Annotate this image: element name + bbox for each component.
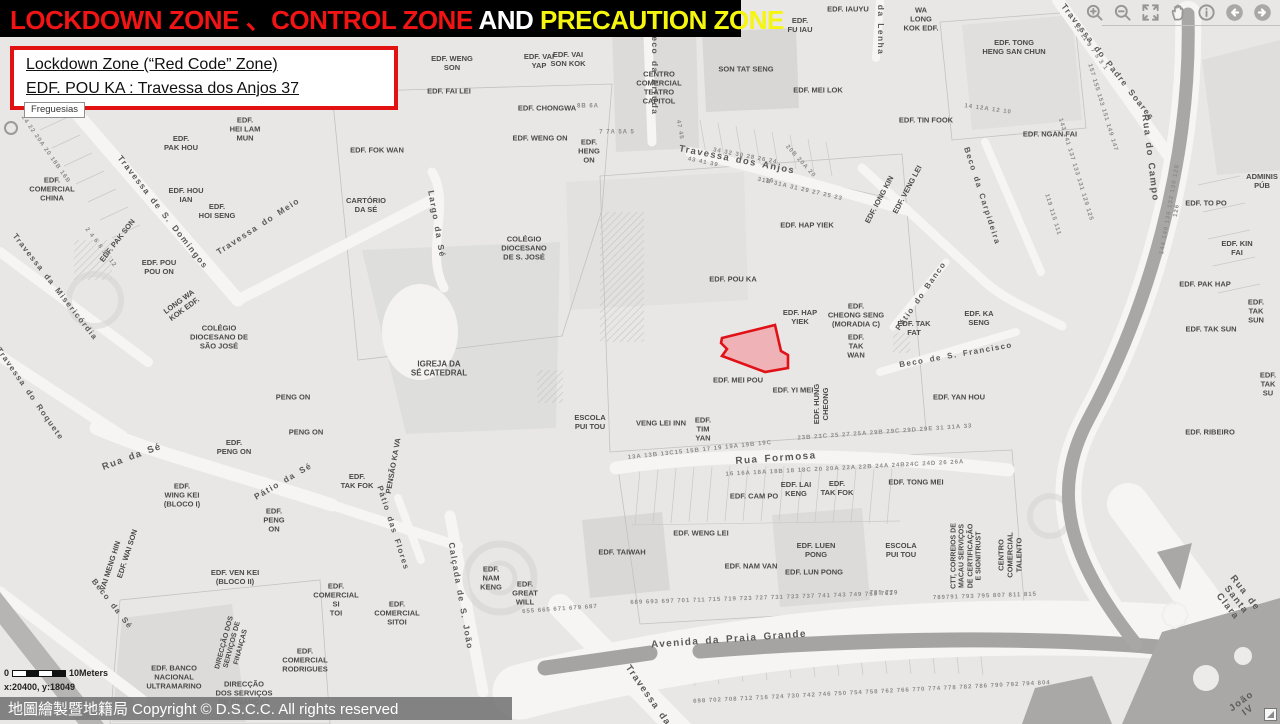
overview-map-toggle[interactable]	[1264, 708, 1277, 721]
title-segment: 、	[239, 5, 271, 35]
footer-bar: 地圖繪製暨地籍局 Copyright © D.S.C.C. All rights…	[0, 697, 512, 720]
title-segment: PRECAUTION ZONE	[540, 5, 784, 35]
full-extent-icon[interactable]	[1141, 3, 1160, 22]
info-line: Lockdown Zone (“Red Code” Zone)	[26, 53, 386, 77]
scale-right-label: 10Meters	[69, 668, 108, 678]
info-box: Lockdown Zone (“Red Code” Zone)EDF. POU …	[10, 46, 398, 110]
title-segment: AND	[473, 5, 540, 35]
title-segment: LOCKDOWN ZONE	[10, 5, 239, 35]
title-bar-text: LOCKDOWN ZONE 、CONTROL ZONE AND PRECAUTI…	[10, 0, 784, 37]
zoom-in-icon[interactable]	[1085, 3, 1104, 22]
copyright-text: 地圖繪製暨地籍局 Copyright © D.S.C.C. All rights…	[8, 698, 398, 719]
identify-icon[interactable]	[1197, 3, 1216, 22]
previous-extent-icon[interactable]	[1225, 3, 1244, 22]
map-toolbar	[1085, 3, 1272, 22]
layer-target-icon	[4, 121, 18, 135]
title-bar: LOCKDOWN ZONE 、CONTROL ZONE AND PRECAUTI…	[0, 0, 741, 37]
scale-bar: 0 10Meters	[4, 668, 108, 678]
zoom-out-icon[interactable]	[1113, 3, 1132, 22]
title-segment: CONTROL ZONE	[271, 5, 473, 35]
info-line: EDF. POU KA : Travessa dos Anjos 37	[26, 77, 386, 101]
scale-segments	[12, 670, 66, 677]
coordinates-readout: x:20400, y:18049	[4, 682, 75, 692]
scale-left-label: 0	[4, 668, 9, 678]
toolbar-divider	[1102, 25, 1280, 26]
pan-icon[interactable]	[1169, 3, 1188, 22]
map-viewer: EDF. IAUYUEDF. FU IAUWA LONG KOK EDF.EDF…	[0, 0, 1280, 724]
freguesias-legend: Freguesias	[24, 102, 85, 118]
next-extent-icon[interactable]	[1253, 3, 1272, 22]
